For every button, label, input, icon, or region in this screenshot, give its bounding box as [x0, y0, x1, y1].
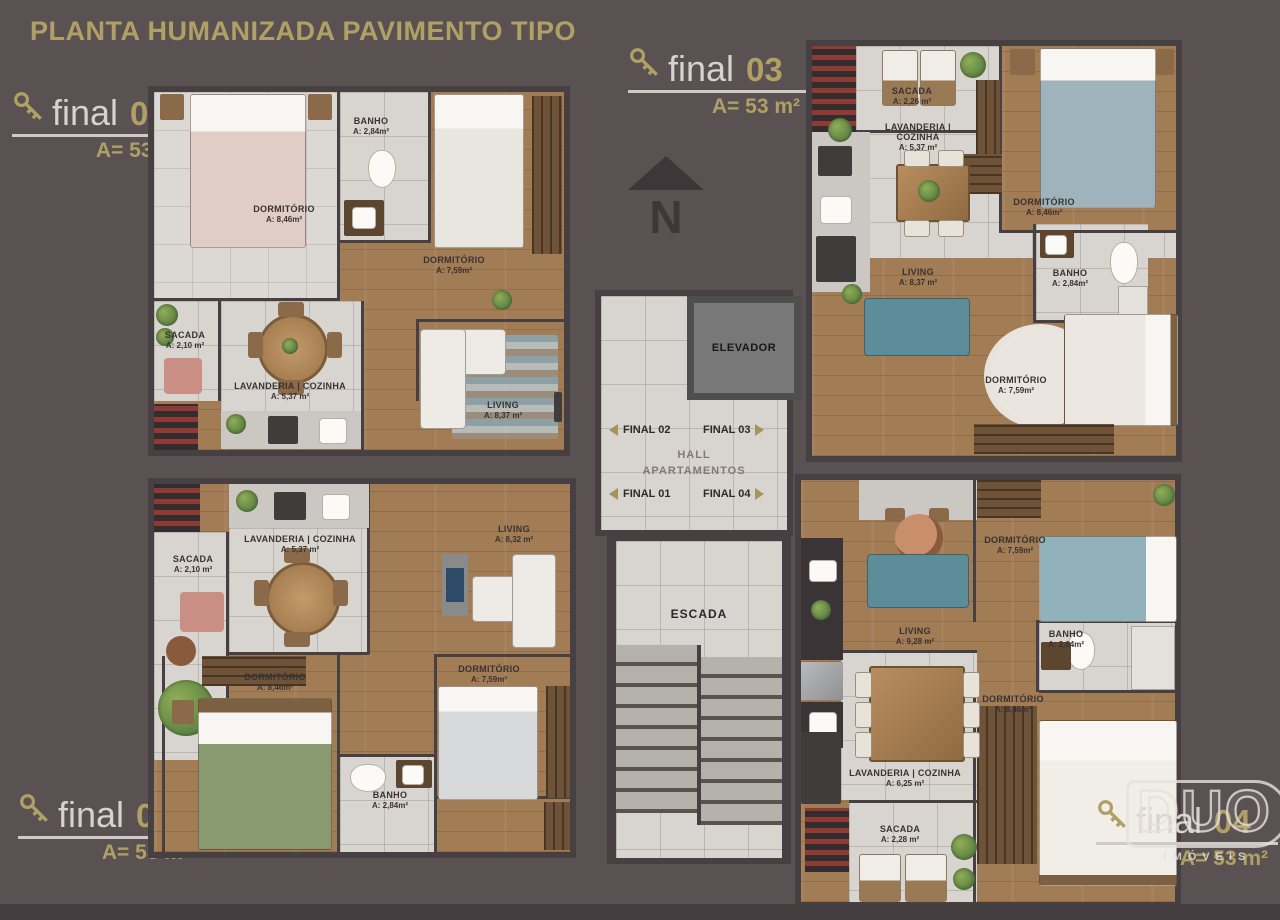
room-label: DORMITÓRIO A: 8,46m² [982, 694, 1044, 714]
plant [236, 490, 258, 512]
page-title: PLANTA HUMANIZADA PAVIMENTO TIPO [30, 16, 576, 47]
chair [963, 672, 980, 698]
stair-tread [699, 741, 782, 762]
toilet [350, 764, 386, 792]
plant [951, 834, 977, 860]
sofa [867, 554, 969, 608]
cabinet [801, 538, 843, 660]
plant [492, 290, 512, 310]
stairwell: ESCADA [607, 536, 791, 864]
plant [960, 52, 986, 78]
shelf-rack [154, 484, 200, 532]
plant [156, 304, 178, 326]
stair-tread [699, 783, 782, 804]
unit-area: A= 53 m² [628, 95, 810, 119]
wall [849, 800, 977, 803]
sign-final-01: FINAL 01 [609, 488, 670, 500]
kitchen-sink [820, 196, 852, 224]
wall [337, 92, 340, 300]
stair-tread [616, 645, 699, 666]
kitchen-sink [322, 494, 350, 520]
room-label: LIVING A: 8,32 m² [495, 524, 533, 544]
wall [340, 754, 434, 757]
shelf-rack [805, 808, 849, 872]
tv [554, 392, 562, 422]
sign-final-04: FINAL 04 [703, 488, 764, 500]
stair-tread [616, 771, 699, 792]
stove [818, 146, 852, 176]
stair-flight-left [616, 645, 699, 813]
chair [248, 332, 263, 358]
chair [254, 580, 269, 606]
chair [855, 732, 872, 758]
plant [811, 600, 831, 620]
chair [327, 332, 342, 358]
dining-table [869, 666, 965, 762]
wall [841, 650, 977, 653]
toilet [368, 150, 396, 188]
logo-frame: DUO [1126, 780, 1280, 848]
floorplan-final-01: DORMITÓRIO A: 8,46m² BANHO A: 2,84m² DOR… [148, 86, 570, 456]
stair-tread [616, 708, 699, 729]
unit-number: 03 [746, 55, 783, 85]
balcony-chair [180, 592, 224, 632]
room-label: LIVING A: 8,37 m² [484, 400, 522, 420]
stair-tread [699, 657, 782, 678]
chair [963, 702, 980, 728]
shower [1131, 626, 1175, 690]
sink [352, 207, 376, 229]
wall [416, 319, 419, 401]
room-label: DORMITÓRIO A: 8,46m² [253, 204, 315, 224]
plant-pot [166, 636, 196, 666]
room-label: LIVING A: 8,37 m² [899, 267, 937, 287]
room-label: LAVANDERIA | COZINHA A: 5,37 m² [234, 381, 346, 401]
chair [904, 220, 930, 237]
wall [337, 654, 340, 852]
room-label: SACADA A: 2,10 m² [173, 554, 213, 574]
room-label: DORMITÓRIO A: 8,46m² [244, 672, 306, 692]
wall [218, 301, 221, 401]
chair [904, 150, 930, 167]
sun-lounger [905, 854, 947, 902]
room-label: DORMITÓRIO A: 7,59m² [984, 535, 1046, 555]
toilet [1110, 242, 1138, 284]
sign-final-03: FINAL 03 [703, 424, 764, 436]
chair [855, 672, 872, 698]
shelf-rack [154, 404, 198, 450]
nightstand [1010, 49, 1035, 75]
arrow-right-icon [755, 424, 764, 436]
wall [361, 301, 364, 450]
arrow-right-icon [755, 488, 764, 500]
logo-subtitle: IMÓVEIS [1126, 851, 1280, 863]
stair-tread [699, 762, 782, 783]
unit-header-final-03: final 03 A= 53 m² [628, 46, 810, 119]
stair-tread [616, 792, 699, 813]
nightstand [1156, 49, 1174, 75]
key-icon [18, 792, 52, 831]
plant [918, 180, 940, 202]
stair-tread [699, 804, 782, 825]
fridge [816, 236, 856, 282]
stair-tread [699, 720, 782, 741]
tv [446, 568, 464, 602]
bed [1040, 48, 1156, 208]
wall [1036, 620, 1039, 692]
closet [974, 424, 1114, 454]
wall [162, 656, 165, 852]
dining-table [266, 562, 340, 636]
bed [198, 698, 332, 850]
closet [977, 480, 1041, 518]
plant [1153, 484, 1175, 506]
wall [229, 652, 369, 655]
chair [938, 220, 964, 237]
bottom-border [0, 904, 1280, 920]
wall [416, 319, 564, 322]
stair-tread [616, 750, 699, 771]
stove [274, 492, 306, 520]
plant [842, 284, 862, 304]
room-label: SACADA A: 2,10 m² [165, 330, 205, 350]
chair [855, 702, 872, 728]
kitchen-sink [319, 418, 347, 444]
nightstand [172, 700, 194, 724]
floor-plan-canvas: PLANTA HUMANIZADA PAVIMENTO TIPO final 0… [0, 0, 1280, 920]
closet [544, 802, 570, 850]
sofa-chaise [420, 329, 466, 429]
stair-divider [697, 645, 701, 825]
chair [333, 580, 348, 606]
stair-tread [616, 729, 699, 750]
stair-tread [616, 666, 699, 687]
room-label: DORMITÓRIO A: 8,46m² [1013, 197, 1075, 217]
unit-label: final [58, 800, 124, 831]
wall [428, 92, 431, 240]
elevator: ELEVADOR [687, 296, 801, 400]
basin [809, 560, 837, 582]
chair [963, 732, 980, 758]
plant [226, 414, 246, 434]
stair-tread [699, 699, 782, 720]
floorplan-final-02: SACADA A: 2,10 m² LAVANDERIA | COZINHA A… [148, 478, 576, 858]
bed [1064, 314, 1178, 426]
wall [973, 480, 976, 622]
floorplan-final-03: SACADA A: 2,26 m² LAVANDERIA | COZINHA A… [806, 40, 1182, 462]
north-arrow-icon [628, 156, 704, 190]
bed [1039, 536, 1177, 622]
chair [938, 150, 964, 167]
arrow-left-icon [609, 424, 618, 436]
key-icon [1096, 798, 1130, 837]
stove [268, 416, 298, 444]
stair-tread [616, 687, 699, 708]
room-label: BANHO A: 2,84m² [1052, 268, 1088, 288]
room-label: SACADA A: 2,28 m² [880, 824, 920, 844]
mirror [801, 662, 843, 700]
wall [340, 240, 431, 243]
hall-apartamentos: ELEVADOR FINAL 02 FINAL 03 HALL APARTAME… [595, 290, 793, 536]
plant [953, 868, 975, 890]
closet [546, 686, 570, 798]
room-label: DORMITÓRIO A: 7,59m² [458, 664, 520, 684]
chair [284, 632, 310, 647]
bed [190, 94, 306, 248]
sofa-chaise [512, 554, 556, 648]
sink [402, 765, 424, 785]
wall [434, 654, 437, 852]
duo-imoveis-logo: DUO IMÓVEIS [1126, 780, 1280, 863]
stairs-label: ESCADA [616, 607, 782, 621]
room-label: DORMITÓRIO A: 7,59m² [985, 375, 1047, 395]
logo-wordmark: DUO [1137, 783, 1272, 841]
arrow-left-icon [609, 488, 618, 500]
unit-label: final [52, 98, 118, 129]
room-label: BANHO A: 2,84m² [353, 116, 389, 136]
stair-tread [699, 678, 782, 699]
room-label: BANHO A: 2,84m² [372, 790, 408, 810]
wall [999, 230, 1176, 233]
chair [278, 302, 304, 317]
bed [434, 94, 524, 248]
closet [532, 96, 562, 254]
key-icon [12, 90, 46, 129]
room-label: DORMITÓRIO A: 7,59m² [423, 255, 485, 275]
north-letter: N [618, 194, 714, 240]
nightstand [308, 94, 332, 120]
hall-label-line1: HALL [601, 449, 787, 461]
sign-final-02: FINAL 02 [609, 424, 670, 436]
sofa [864, 298, 970, 356]
closet [977, 706, 1037, 864]
room-label: LAVANDERIA | COZINHA A: 5,37 m² [244, 534, 356, 554]
elevator-label: ELEVADOR [712, 342, 776, 354]
wall [1039, 690, 1175, 693]
plant [282, 338, 298, 354]
room-label: LIVING A: 9,28 m² [896, 626, 934, 646]
key-icon [628, 46, 662, 85]
sink [1045, 235, 1067, 255]
room-label: LAVANDERIA | COZINHA A: 5,37 m² [874, 122, 962, 152]
wall [434, 654, 570, 657]
sun-lounger [859, 854, 901, 902]
room-label: SACADA A: 2,26 m² [892, 86, 932, 106]
stair-flight-right [699, 657, 782, 825]
nightstand [160, 94, 184, 120]
bed [438, 686, 538, 800]
north-compass: N [618, 156, 714, 240]
wall [154, 298, 340, 301]
wall [1033, 224, 1036, 323]
room-label: LAVANDERIA | COZINHA A: 6,25 m² [849, 768, 961, 788]
plant [828, 118, 852, 142]
unit-label: final [668, 54, 734, 85]
balcony-chair [164, 358, 202, 394]
header-underline [628, 90, 810, 93]
hall-label-line2: APARTAMENTOS [601, 465, 787, 477]
stove [801, 732, 841, 804]
room-label: BANHO A: 2,64m² [1048, 629, 1084, 649]
